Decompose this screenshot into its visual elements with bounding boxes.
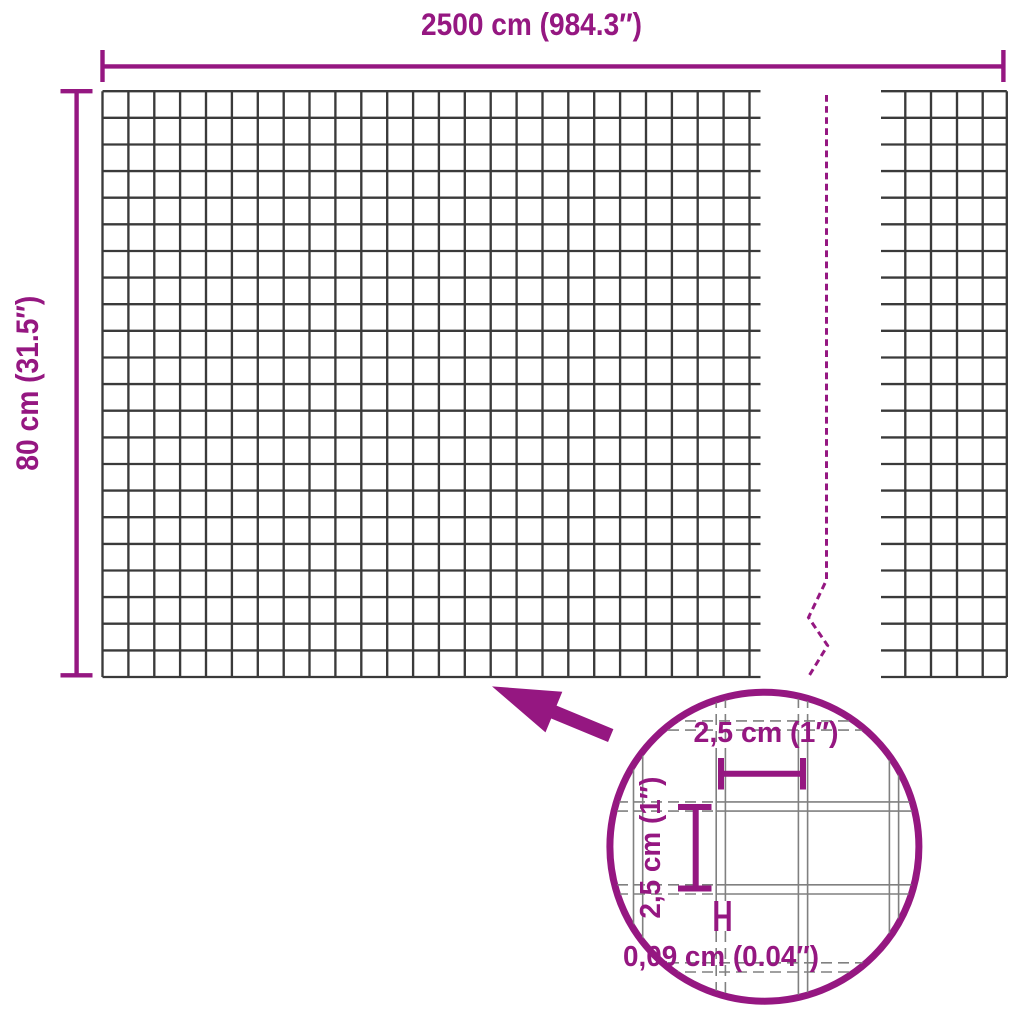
svg-text:2,5 cm (1″): 2,5 cm (1″) (694, 717, 839, 749)
svg-text:2,5 cm (1″): 2,5 cm (1″) (635, 777, 667, 919)
svg-text:0,09 cm (0.04″): 0,09 cm (0.04″) (623, 941, 819, 973)
svg-text:2500 cm (984.3″): 2500 cm (984.3″) (421, 6, 642, 42)
svg-text:80 cm (31.5″): 80 cm (31.5″) (9, 296, 45, 471)
